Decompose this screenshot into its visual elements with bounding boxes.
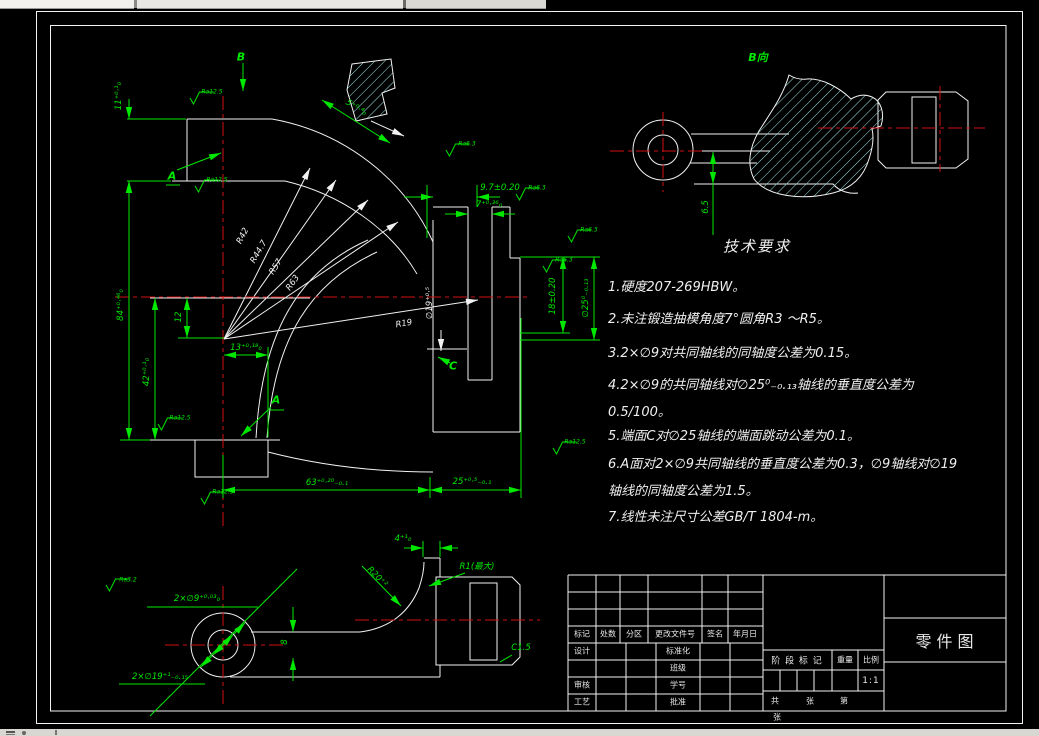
tb-header-docno: 更改文件号 — [655, 629, 695, 640]
tb-scale: 比例 — [863, 655, 879, 666]
tech-line-5: 0.5/100。 — [608, 401, 671, 420]
cad-application-window: B A A C 11⁺⁰·¹₀ 84⁺⁰·⁴⁶₀ 42⁺⁰·¹₀ 12 13⁺⁰… — [0, 0, 1039, 736]
dim-11: 11⁺⁰·¹₀ — [114, 82, 124, 110]
statusbar-mark — [6, 731, 15, 733]
ra-top-face: Ra12.5 — [201, 89, 222, 96]
tech-line-3: 3.2×∅9对共同轴线的同轴度公差为0.15。 — [608, 342, 857, 361]
dim-25: 25⁺⁰·⁵₋₀.₁ — [453, 477, 492, 487]
tech-line-7: 6.A面对2×∅9共同轴线的垂直度公差为0.3，∅9轴线对∅19 — [608, 453, 957, 472]
dim-d25: ∅25⁰₋₀.₁₃ — [581, 278, 591, 317]
tb-standard: 标准化 — [666, 646, 690, 657]
dim-18: 18±0.20 — [548, 278, 558, 315]
ra-holes: Ra3.2 — [119, 577, 136, 584]
ra-side-face: Ra12.5 — [564, 439, 585, 446]
tb-header-zone: 分区 — [626, 629, 642, 640]
tb-header-mark: 标记 — [574, 629, 590, 640]
ra-boss-side: Ra6.3 — [555, 257, 572, 264]
tb-header-sign: 签名 — [707, 629, 723, 640]
tech-line-8: 轴线的同轴度公差为1.5。 — [608, 480, 759, 499]
tb-process: 工艺 — [574, 697, 590, 708]
tb-number: 学号 — [670, 680, 686, 691]
ra-datum-a: Ra12.5 — [206, 177, 227, 184]
b-view-title: B向 — [748, 49, 767, 65]
tb-sheet-overflow: 张 — [773, 712, 781, 723]
tech-title: 技术要求 — [723, 236, 791, 257]
tb-part-title: 零件图 — [915, 628, 978, 652]
tech-line-9: 7.线性未注尺寸公差GB/T 1804-m。 — [608, 506, 823, 525]
tb-header-date: 年月日 — [733, 629, 757, 640]
datum-a-upper-label: A — [168, 170, 177, 183]
dim-c1-5: C1.5 — [511, 643, 530, 653]
tb-sheet-zhang: 张 — [806, 696, 814, 707]
tb-design: 设计 — [574, 646, 590, 657]
dim-84: 84⁺⁰·⁴⁶₀ — [116, 289, 126, 321]
dim-6-5: 6.5 — [701, 200, 711, 214]
dim-d19: ∅19⁺⁰·⁵ — [425, 287, 435, 319]
tb-header-count: 处数 — [600, 629, 616, 640]
dim-12: 12 — [174, 312, 184, 323]
dim-7: 7⁺⁰·³⁶₀ — [476, 200, 502, 210]
dim-13: 13⁺⁰·¹⁸₀ — [230, 343, 262, 353]
b-view-section-hatch — [750, 75, 883, 197]
ra-slot: Ra6.3 — [528, 185, 545, 192]
tb-sheet-gong: 共 — [771, 696, 779, 707]
tb-check: 审核 — [574, 680, 590, 691]
ra-jaw: Ra12.5 — [169, 415, 190, 422]
tb-weight: 重量 — [837, 655, 853, 666]
tb-sheet-di: 第 — [840, 696, 848, 707]
statusbar-fragment[interactable] — [0, 729, 1039, 736]
statusbar-mark — [22, 731, 26, 735]
tb-stage: 阶 段 标 记 — [771, 654, 823, 667]
section-b-label: B — [237, 51, 245, 64]
main-view-radius-dimension-lines — [224, 121, 478, 351]
dim-4: 4⁺¹₀ — [395, 534, 412, 544]
face-c-label: C — [449, 360, 457, 373]
datum-a-lower-label: A — [272, 394, 281, 407]
tb-approve: 批准 — [670, 697, 686, 708]
dim-9-7: 9.7±0.20 — [480, 183, 520, 193]
tech-line-4: 4.2×∅9的共同轴线对∅25⁰₋₀.₁₃轴线的垂直度公差为 — [608, 374, 914, 393]
tech-line-1: 1.硬度207-269HBW。 — [608, 276, 745, 295]
statusbar-mark — [6, 734, 15, 735]
dim-8: 8 — [280, 639, 290, 644]
dim-63: 63⁺⁰·²⁰₋₀.₁ — [306, 478, 348, 488]
main-view-part-outline — [148, 119, 520, 477]
statusbar-mark — [55, 730, 57, 735]
ra-neck: Ra6.3 — [458, 141, 475, 148]
dim-2xd19: 2×∅19⁺¹₋₀.₁₅ — [132, 672, 188, 682]
tech-line-2: 2.未注锻造抽模角度7°圆角R3 ～R5。 — [608, 308, 830, 327]
ra-bottom-face: Ra12.5 — [212, 489, 233, 496]
bottom-view-part-outline — [191, 558, 520, 677]
cad-canvas[interactable] — [0, 0, 1039, 736]
tb-scale-value: 1:1 — [862, 676, 879, 686]
dim-42: 42⁺⁰·¹₀ — [142, 358, 152, 386]
tb-class: 班级 — [670, 663, 686, 674]
dim-r1-max: R1(最大) — [460, 560, 495, 572]
dim-2xd9: 2×∅9⁺⁰·⁰³₀ — [174, 594, 220, 604]
ra-boss-top: Ra6.3 — [580, 227, 597, 234]
tech-line-6: 5.端面C对∅25轴线的端面跳动公差为0.1。 — [608, 425, 860, 444]
